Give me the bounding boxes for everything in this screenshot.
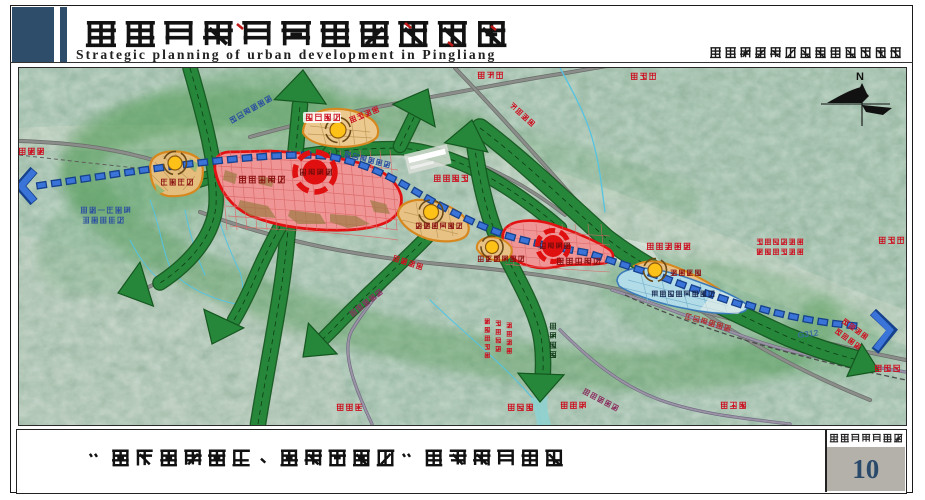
svg-text:N: N	[856, 71, 864, 83]
